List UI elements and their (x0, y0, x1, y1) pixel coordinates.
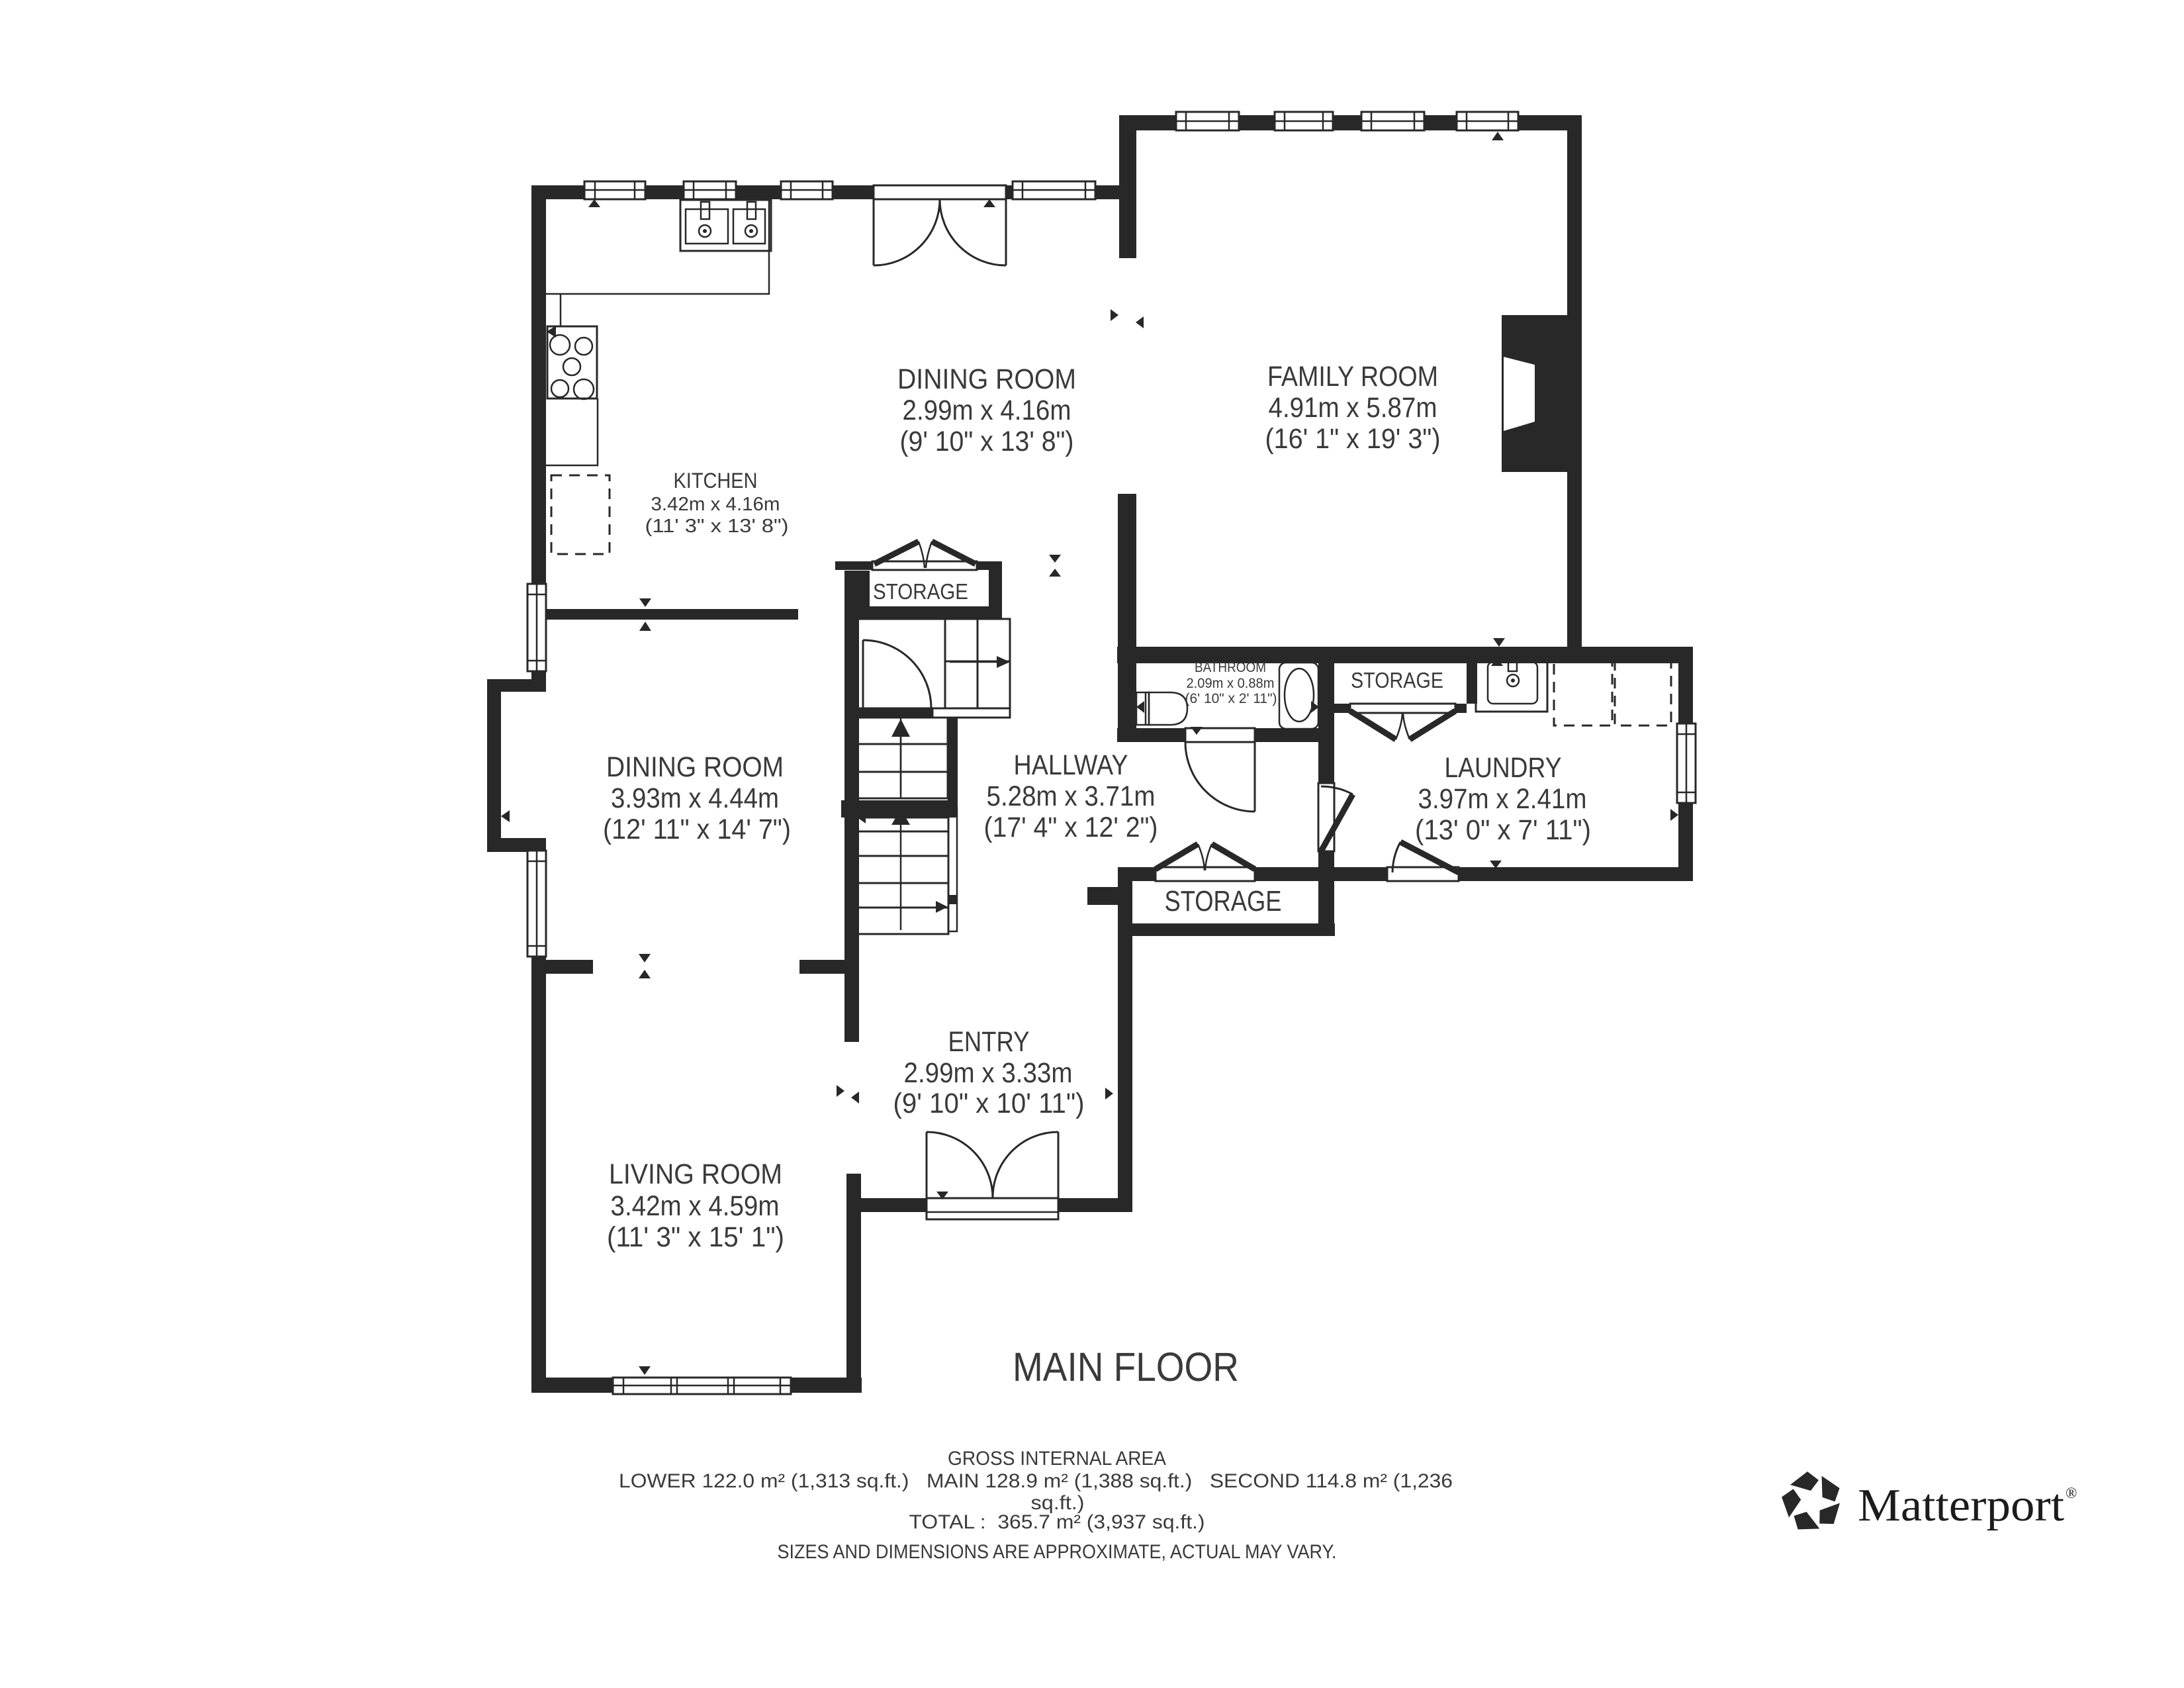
svg-text:TOTAL : 365.7 m² (3,937 sq.ft: TOTAL : 365.7 m² (3,937 sq.ft.) (909, 1511, 1205, 1533)
svg-text:2.99m x 3.33m: 2.99m x 3.33m (904, 1057, 1073, 1089)
svg-text:3.93m x 4.44m: 3.93m x 4.44m (611, 782, 779, 814)
svg-text:FAMILY ROOM: FAMILY ROOM (1267, 361, 1438, 393)
svg-text:2.09m x 0.88m: 2.09m x 0.88m (1187, 676, 1275, 691)
svg-text:(11' 3" x 15' 1"): (11' 3" x 15' 1") (607, 1221, 784, 1253)
svg-text:3.97m x 2.41m: 3.97m x 2.41m (1418, 783, 1587, 815)
svg-text:SIZES AND DIMENSIONS ARE APPRO: SIZES AND DIMENSIONS ARE APPROXIMATE, AC… (778, 1541, 1337, 1563)
svg-text:DINING ROOM: DINING ROOM (606, 751, 784, 783)
svg-text:HALLWAY: HALLWAY (1014, 749, 1128, 781)
svg-text:Matterport: Matterport (1858, 1480, 2065, 1531)
svg-text:STORAGE: STORAGE (1351, 668, 1443, 692)
svg-text:LAUNDRY: LAUNDRY (1445, 752, 1562, 784)
svg-text:(9' 10" x 13' 8"): (9' 10" x 13' 8") (900, 426, 1074, 457)
svg-text:2.99m x 4.16m: 2.99m x 4.16m (903, 395, 1071, 426)
svg-text:(16' 1" x 19' 3"): (16' 1" x 19' 3") (1265, 423, 1441, 455)
svg-text:ENTRY: ENTRY (948, 1026, 1030, 1058)
svg-text:(13' 0" x 7' 11"): (13' 0" x 7' 11") (1415, 814, 1591, 846)
svg-text:KITCHEN: KITCHEN (674, 469, 758, 492)
svg-text:5.28m x 3.71m: 5.28m x 3.71m (987, 780, 1156, 812)
svg-text:(6' 10" x 2' 11"): (6' 10" x 2' 11") (1185, 691, 1277, 706)
svg-text:(9' 10" x 10' 11"): (9' 10" x 10' 11") (893, 1088, 1085, 1119)
svg-text:STORAGE: STORAGE (1165, 885, 1282, 917)
svg-text:LIVING ROOM: LIVING ROOM (609, 1158, 782, 1190)
svg-text:4.91m x 5.87m: 4.91m x 5.87m (1269, 392, 1437, 424)
svg-text:(17' 4" x 12' 2"): (17' 4" x 12' 2") (984, 812, 1158, 843)
svg-text:3.42m x 4.16m: 3.42m x 4.16m (651, 494, 780, 515)
svg-text:(11' 3" x 13' 8"): (11' 3" x 13' 8") (645, 516, 789, 537)
svg-text:DINING ROOM: DINING ROOM (897, 363, 1076, 395)
svg-text:(12' 11" x 14' 7"): (12' 11" x 14' 7") (603, 814, 791, 845)
svg-text:LOWER 122.0 m² (1,313 sq.ft.): LOWER 122.0 m² (1,313 sq.ft.) MAIN 128.9… (619, 1470, 1453, 1492)
svg-text:3.42m x 4.59m: 3.42m x 4.59m (611, 1190, 780, 1222)
svg-text:MAIN FLOOR: MAIN FLOOR (1013, 1344, 1239, 1389)
svg-text:BATHROOM: BATHROOM (1195, 660, 1266, 675)
svg-text:®: ® (2066, 1485, 2077, 1501)
svg-text:GROSS INTERNAL AREA: GROSS INTERNAL AREA (948, 1448, 1166, 1470)
svg-text:STORAGE: STORAGE (873, 579, 968, 604)
